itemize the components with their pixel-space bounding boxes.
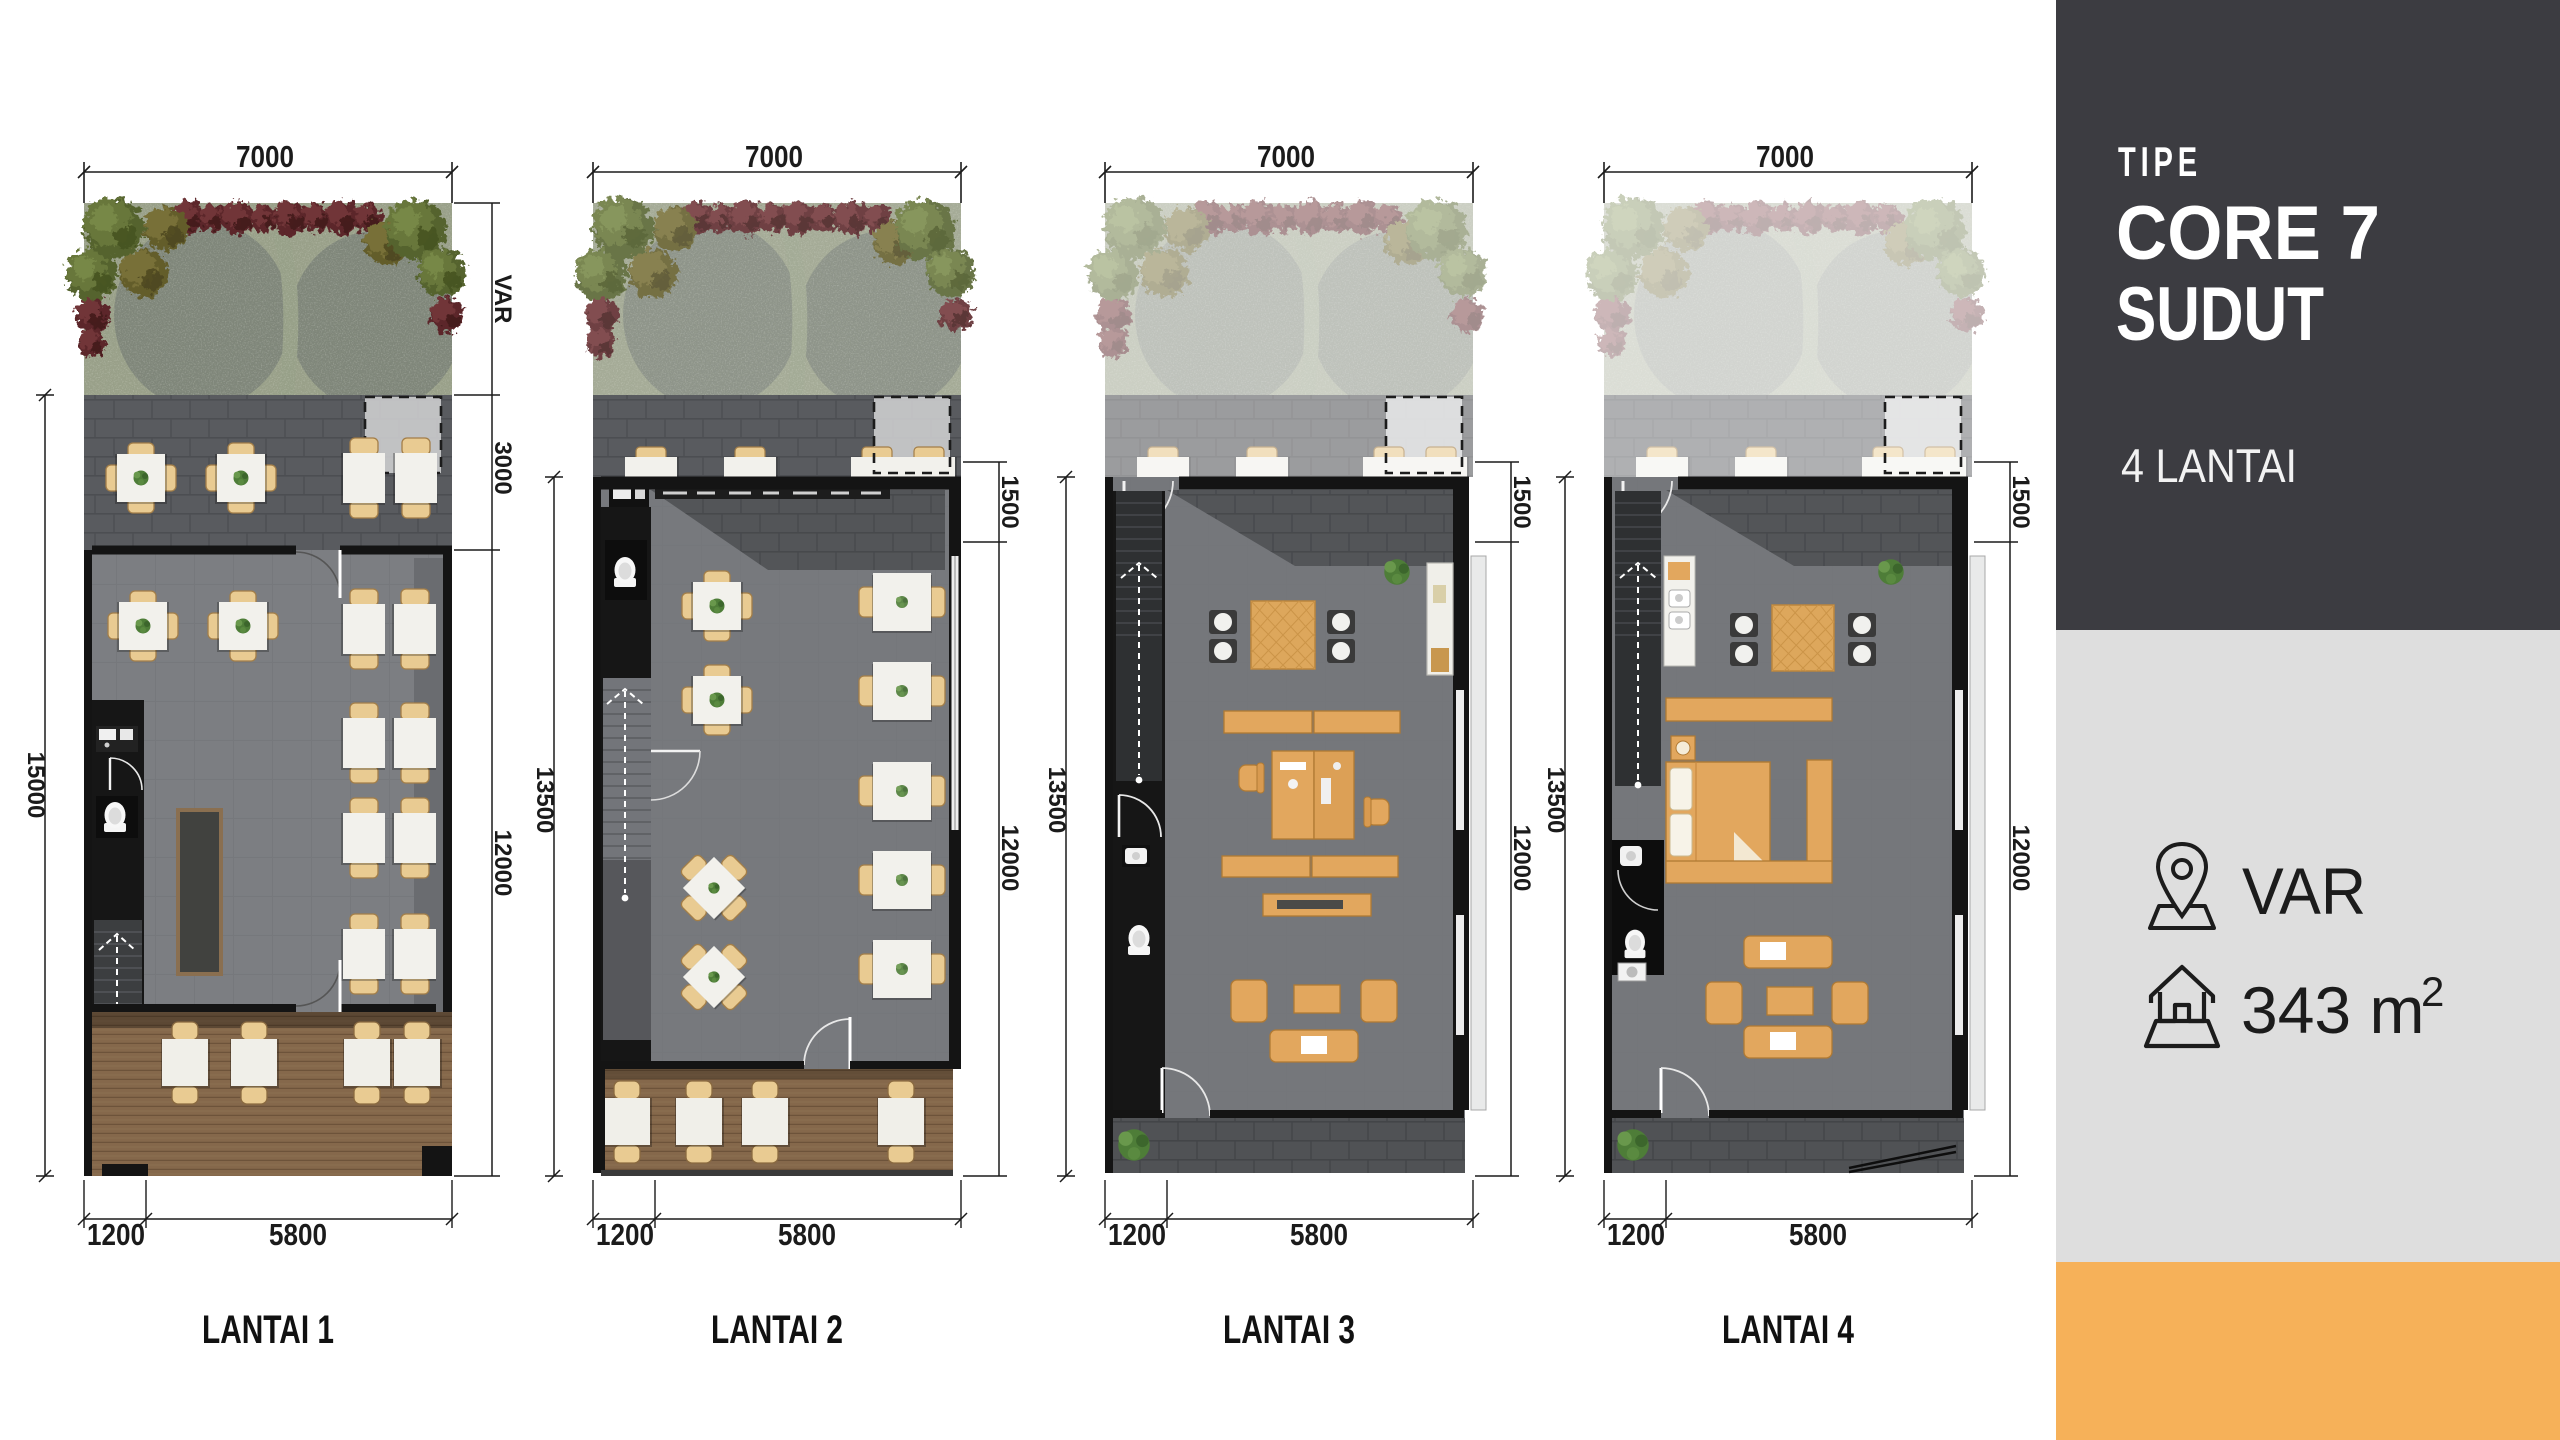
svg-text:7000: 7000	[236, 139, 294, 174]
svg-text:5800: 5800	[1789, 1217, 1847, 1252]
svg-text:1200: 1200	[87, 1217, 145, 1252]
svg-text:12000: 12000	[489, 830, 516, 897]
svg-text:7000: 7000	[1257, 139, 1315, 174]
svg-text:5800: 5800	[269, 1217, 327, 1252]
svg-text:15000: 15000	[22, 752, 49, 819]
svg-text:1200: 1200	[596, 1217, 654, 1252]
svg-text:1500: 1500	[2007, 475, 2034, 528]
svg-text:13500: 13500	[1542, 767, 1569, 834]
svg-text:1500: 1500	[1508, 475, 1535, 528]
svg-text:12000: 12000	[2007, 825, 2034, 892]
svg-text:TIPE: TIPE	[2118, 138, 2202, 185]
svg-text:CORE 7: CORE 7	[2116, 191, 2380, 276]
svg-text:5800: 5800	[778, 1217, 836, 1252]
svg-text:LANTAI 4: LANTAI 4	[1722, 1308, 1855, 1352]
svg-text:13500: 13500	[1043, 767, 1070, 834]
svg-text:7000: 7000	[1756, 139, 1814, 174]
svg-text:3000: 3000	[489, 441, 516, 494]
svg-text:LANTAI 2: LANTAI 2	[711, 1308, 843, 1352]
svg-text:1200: 1200	[1108, 1217, 1166, 1252]
svg-text:VAR: VAR	[489, 275, 516, 324]
svg-text:1500: 1500	[996, 475, 1023, 528]
svg-text:4 LANTAI: 4 LANTAI	[2121, 439, 2297, 492]
svg-text:SUDUT: SUDUT	[2116, 272, 2324, 357]
svg-text:12000: 12000	[996, 825, 1023, 892]
svg-text:VAR: VAR	[2242, 854, 2366, 928]
svg-text:LANTAI 1: LANTAI 1	[202, 1308, 334, 1352]
svg-text:5800: 5800	[1290, 1217, 1348, 1252]
svg-text:13500: 13500	[531, 767, 558, 834]
svg-text:LANTAI 3: LANTAI 3	[1223, 1308, 1355, 1352]
svg-text:343 m: 343 m	[2241, 973, 2424, 1047]
svg-text:12000: 12000	[1508, 825, 1535, 892]
svg-text:7000: 7000	[745, 139, 803, 174]
svg-text:1200: 1200	[1607, 1217, 1665, 1252]
svg-text:2: 2	[2421, 968, 2444, 1015]
